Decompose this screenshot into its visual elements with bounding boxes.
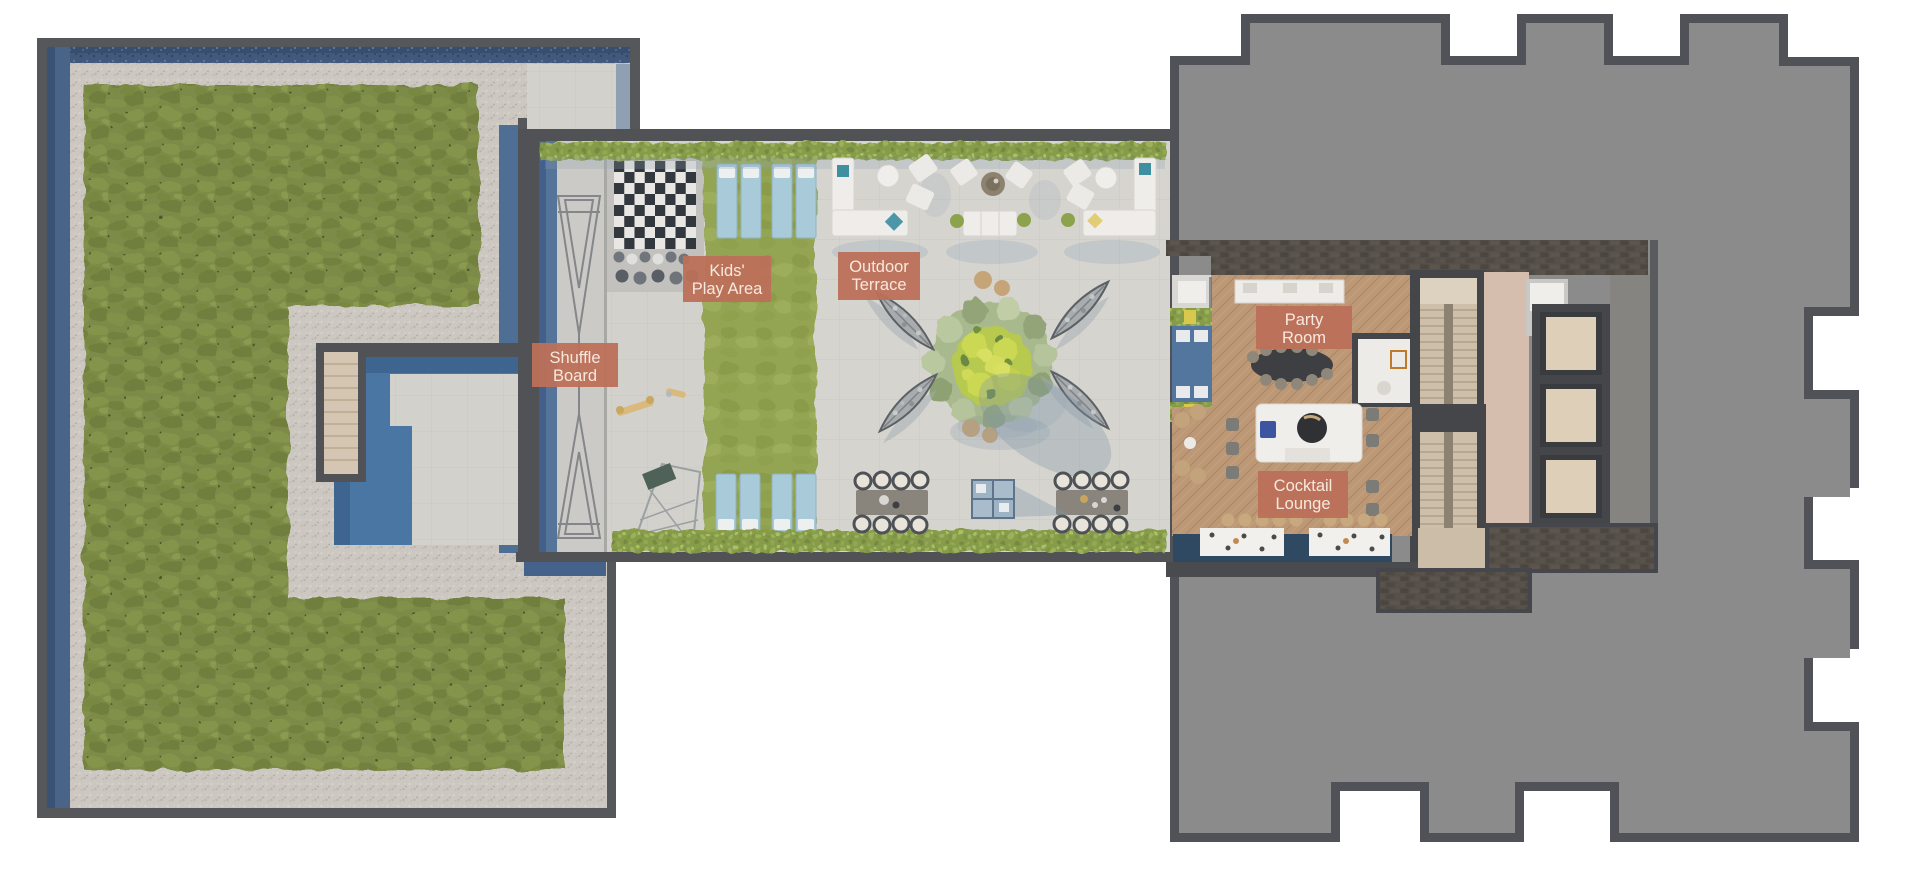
svg-text:Terrace: Terrace — [851, 276, 906, 294]
svg-text:Play Area: Play Area — [692, 280, 763, 298]
svg-text:Room: Room — [1282, 329, 1326, 347]
svg-text:Cocktail: Cocktail — [1274, 477, 1333, 495]
svg-text:Outdoor: Outdoor — [849, 258, 909, 276]
svg-text:Board: Board — [553, 367, 597, 385]
svg-text:Kids': Kids' — [709, 262, 744, 280]
svg-text:Shuffle: Shuffle — [549, 349, 600, 367]
svg-text:Party: Party — [1285, 311, 1324, 329]
svg-text:Lounge: Lounge — [1275, 495, 1330, 513]
